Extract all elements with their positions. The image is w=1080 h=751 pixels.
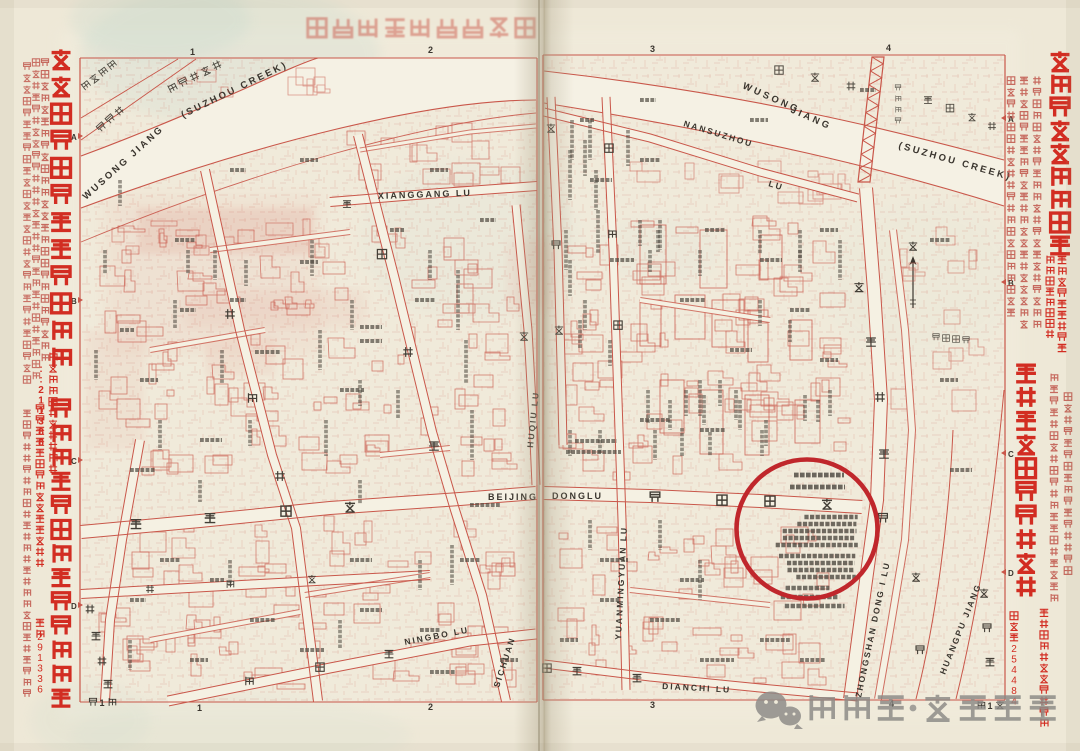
svg-text:2: 2 — [37, 632, 43, 643]
svg-text:4: 4 — [1011, 676, 1017, 687]
svg-text:4: 4 — [886, 43, 891, 53]
svg-text:1: 1 — [99, 698, 104, 708]
svg-text:3: 3 — [37, 664, 43, 675]
svg-text::: : — [39, 375, 42, 386]
svg-text:3: 3 — [37, 674, 43, 685]
svg-text:1: 1 — [197, 703, 202, 713]
svg-text:8: 8 — [38, 438, 44, 449]
svg-text:6: 6 — [37, 685, 43, 696]
svg-text:1: 1 — [190, 47, 195, 57]
svg-text::: : — [39, 364, 42, 375]
svg-text:1: 1 — [37, 653, 43, 664]
svg-text:2: 2 — [1011, 644, 1017, 655]
svg-text:A: A — [71, 133, 77, 142]
svg-text:2: 2 — [428, 702, 433, 712]
svg-text:5: 5 — [1011, 655, 1017, 666]
svg-text:3: 3 — [650, 700, 655, 710]
svg-text:4: 4 — [1011, 665, 1017, 676]
svg-text:C: C — [1008, 450, 1014, 459]
svg-text:1: 1 — [987, 701, 992, 711]
svg-text:9: 9 — [37, 643, 43, 654]
svg-text:3: 3 — [650, 44, 655, 54]
svg-text:D: D — [71, 602, 77, 611]
svg-text:2: 2 — [38, 385, 44, 396]
svg-text:C: C — [71, 457, 77, 466]
svg-text:D: D — [1008, 569, 1014, 578]
svg-text:2: 2 — [428, 45, 433, 55]
